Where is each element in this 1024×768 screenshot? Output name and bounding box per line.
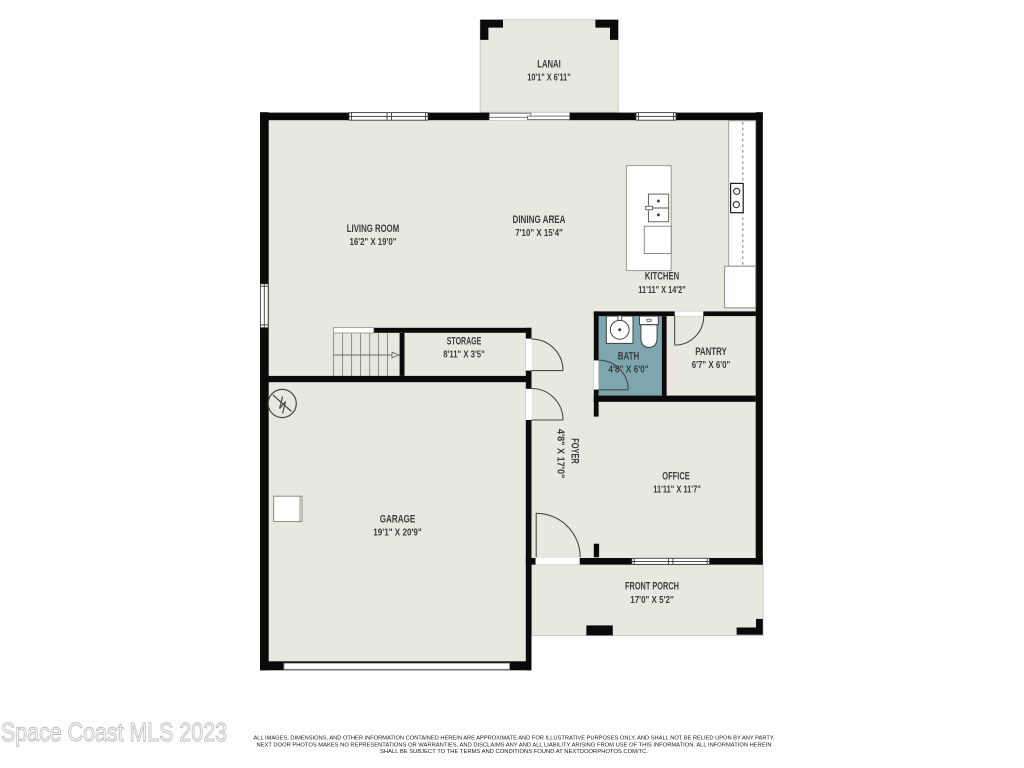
svg-text:7'10" X 15'4": 7'10" X 15'4" (515, 228, 563, 239)
svg-text:SHALL BE SUBJECT TO THE TERMS: SHALL BE SUBJECT TO THE TERMS AND CONDIT… (380, 749, 648, 755)
svg-text:8'11" X 3'5": 8'11" X 3'5" (443, 349, 485, 360)
svg-text:4'8" X 17'0": 4'8" X 17'0" (555, 429, 566, 479)
svg-text:PANTRY: PANTRY (695, 346, 727, 358)
svg-text:OFFICE: OFFICE (662, 470, 690, 482)
svg-text:19'1" X 20'9": 19'1" X 20'9" (373, 528, 422, 539)
svg-text:STORAGE: STORAGE (447, 335, 482, 347)
svg-text:11'11" X 11'7": 11'11" X 11'7" (653, 484, 701, 495)
svg-text:FRONT PORCH: FRONT PORCH (625, 580, 679, 592)
svg-text:GARAGE: GARAGE (380, 513, 416, 525)
svg-text:FOYER: FOYER (569, 438, 581, 464)
svg-text:ALL IMAGES, DIMENSIONS, AND OT: ALL IMAGES, DIMENSIONS, AND OTHER INFORM… (254, 735, 775, 741)
svg-text:KITCHEN: KITCHEN (645, 270, 680, 282)
svg-text:6'7" X 6'0": 6'7" X 6'0" (692, 360, 731, 371)
svg-text:NEXT DOOR PHOTOS MAKES NO REPR: NEXT DOOR PHOTOS MAKES NO REPRESENTATION… (257, 742, 772, 748)
svg-text:16'2" X 19'0": 16'2" X 19'0" (350, 237, 397, 248)
svg-text:DINING AREA: DINING AREA (513, 214, 566, 226)
svg-text:Space Coast MLS 2023: Space Coast MLS 2023 (1, 717, 227, 747)
svg-text:BATH: BATH (618, 351, 640, 363)
svg-text:17'0" X 5'2": 17'0" X 5'2" (630, 595, 674, 606)
svg-text:10'1" X 6'11": 10'1" X 6'11" (527, 73, 571, 84)
svg-text:4'8" X 6'0": 4'8" X 6'0" (608, 365, 649, 376)
svg-text:LIVING ROOM: LIVING ROOM (347, 223, 400, 235)
svg-text:LANAI: LANAI (537, 59, 561, 71)
svg-text:11'11" X 14'2": 11'11" X 14'2" (638, 285, 686, 296)
